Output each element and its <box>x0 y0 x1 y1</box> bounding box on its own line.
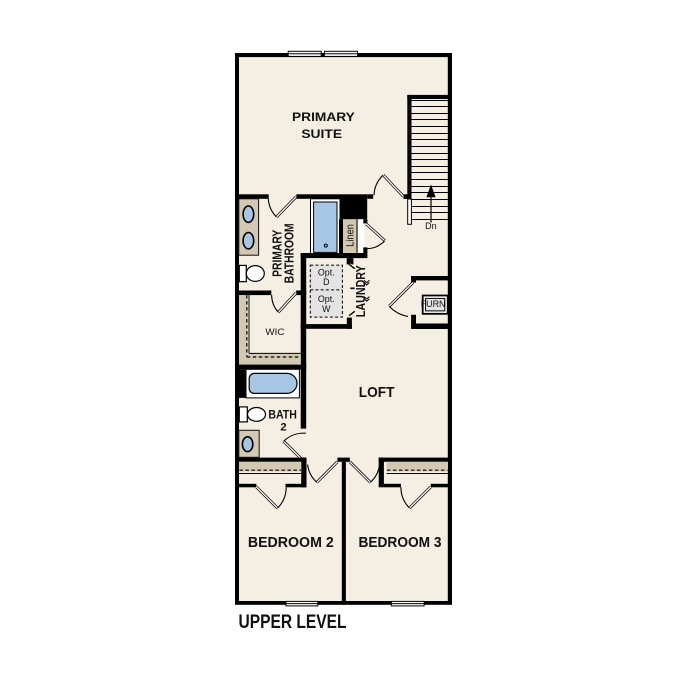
svg-text:Opt.: Opt. <box>318 294 335 304</box>
svg-text:PRIMARY: PRIMARY <box>292 110 355 124</box>
svg-text:LOFT: LOFT <box>359 384 395 401</box>
svg-text:Dn: Dn <box>425 221 437 232</box>
svg-text:D: D <box>323 277 329 287</box>
svg-text:BATHROOM: BATHROOM <box>281 223 296 283</box>
svg-text:WIC: WIC <box>265 327 284 338</box>
svg-text:SUITE: SUITE <box>301 127 342 141</box>
svg-text:BEDROOM 3: BEDROOM 3 <box>359 535 442 551</box>
svg-text:BATH: BATH <box>268 408 297 422</box>
svg-text:UPPER LEVEL: UPPER LEVEL <box>239 612 347 633</box>
svg-text:W: W <box>322 304 331 314</box>
svg-text:Opt.: Opt. <box>318 268 335 278</box>
svg-text:LAUNDRY: LAUNDRY <box>353 265 368 317</box>
svg-text:BEDROOM 2: BEDROOM 2 <box>248 535 334 551</box>
svg-text:2: 2 <box>280 421 286 433</box>
svg-text:FURN: FURN <box>421 298 446 309</box>
svg-text:Linen: Linen <box>345 224 357 247</box>
